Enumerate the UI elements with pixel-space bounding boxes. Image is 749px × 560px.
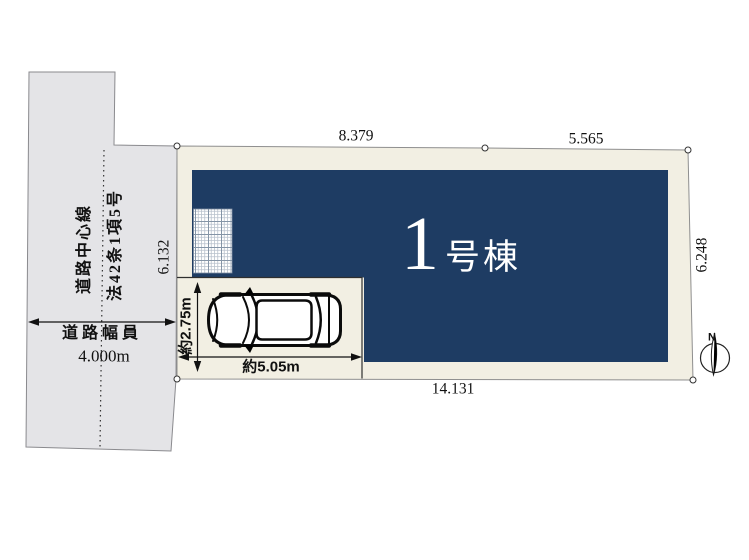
site-plan: 8.379 5.565 6.132 6.248 14.131 約2.75m 約5… (0, 0, 749, 560)
dim-right-label: 6.248 (694, 238, 710, 273)
vertex-marker (690, 377, 696, 383)
vertex-marker (482, 145, 488, 151)
dim-top-right-label: 5.565 (569, 131, 604, 147)
compass-north-label: N (708, 333, 716, 344)
building-label: 1 号棟 (401, 206, 521, 282)
entrance-hatch (194, 209, 233, 273)
vertex-marker (174, 376, 180, 382)
building-suffix: 号棟 (445, 240, 521, 275)
parking-depth-label: 約2.75m (179, 297, 194, 355)
car-top-view-icon (209, 287, 341, 353)
road-centerline-label: 道路中心線 (77, 204, 93, 294)
dim-left-label: 6.132 (156, 240, 172, 275)
road-law-label: 法42条1項5号 (108, 189, 124, 301)
vertex-marker (174, 143, 180, 149)
road-width-label: 道路幅員 (62, 326, 142, 342)
parking-width-label: 約5.05m (242, 360, 300, 375)
dim-top-left-label: 8.379 (339, 128, 374, 144)
building-number: 1 (401, 206, 439, 282)
dim-bottom-label: 14.131 (432, 381, 475, 397)
road-width-value: 4.000m (78, 348, 129, 365)
vertex-marker (685, 147, 691, 153)
